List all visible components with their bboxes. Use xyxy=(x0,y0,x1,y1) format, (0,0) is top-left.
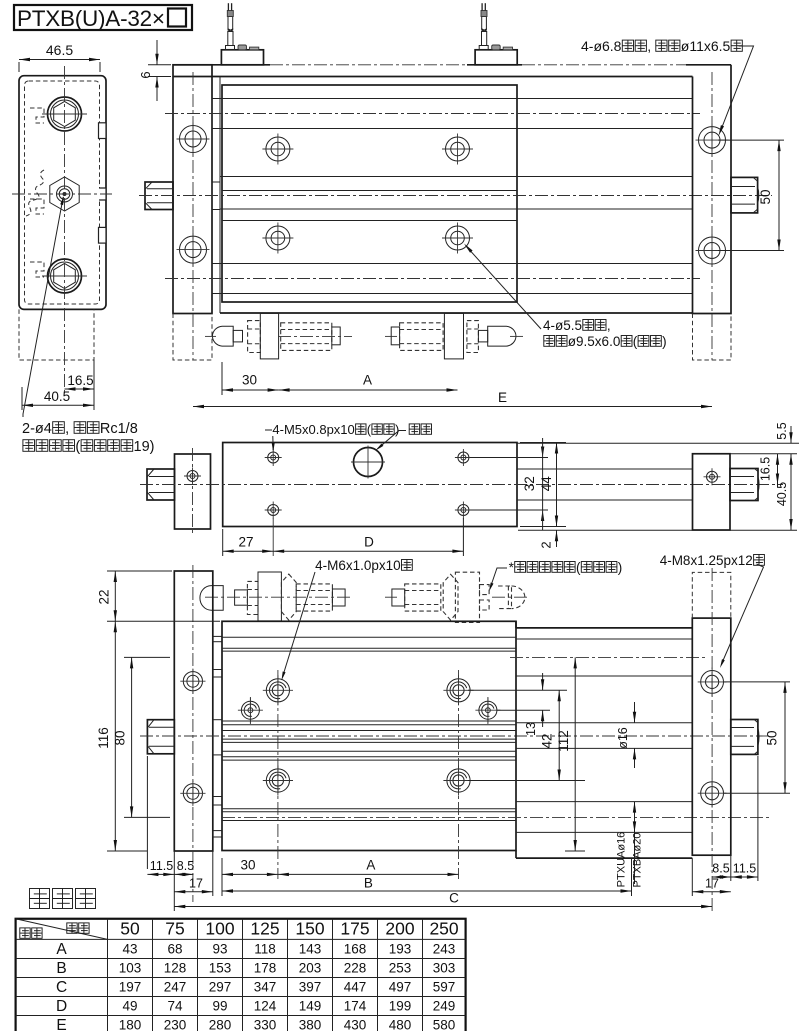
svg-text:280: 280 xyxy=(209,1018,232,1031)
svg-text:200: 200 xyxy=(385,919,414,939)
svg-text:303: 303 xyxy=(433,961,456,976)
svg-text:30: 30 xyxy=(240,858,255,873)
svg-text:74: 74 xyxy=(167,999,183,1014)
svg-text:50: 50 xyxy=(120,919,140,939)
svg-text:174: 174 xyxy=(344,999,367,1014)
svg-text:4-M6x1.0px10: 4-M6x1.0px10 xyxy=(315,558,401,573)
svg-text:124: 124 xyxy=(254,999,277,1014)
svg-text:228: 228 xyxy=(344,961,367,976)
svg-text:PTXUAø16: PTXUAø16 xyxy=(616,832,628,888)
svg-text:,: , xyxy=(65,421,69,437)
svg-text:116: 116 xyxy=(96,727,111,749)
svg-text:16.5: 16.5 xyxy=(759,457,773,481)
svg-text:125: 125 xyxy=(250,919,279,939)
svg-text:C: C xyxy=(449,891,459,906)
svg-text:5.5: 5.5 xyxy=(775,422,789,439)
svg-text:,: , xyxy=(647,38,651,54)
svg-text:16.5: 16.5 xyxy=(67,373,93,388)
svg-text:203: 203 xyxy=(299,961,322,976)
svg-text:430: 430 xyxy=(344,1018,367,1031)
svg-text:B: B xyxy=(56,960,66,977)
svg-text:D: D xyxy=(364,535,374,550)
svg-text:297: 297 xyxy=(209,980,232,995)
svg-text:40.5: 40.5 xyxy=(775,482,789,506)
svg-text:17: 17 xyxy=(189,877,203,891)
svg-text:4-ø6.8: 4-ø6.8 xyxy=(581,38,622,54)
svg-text:178: 178 xyxy=(254,961,277,976)
svg-text:480: 480 xyxy=(389,1018,412,1031)
svg-text:447: 447 xyxy=(344,980,367,995)
svg-text:4-ø5.5: 4-ø5.5 xyxy=(543,318,582,333)
svg-text:153: 153 xyxy=(209,961,232,976)
svg-text:112: 112 xyxy=(556,730,571,752)
svg-text:197: 197 xyxy=(119,980,142,995)
svg-text:): ) xyxy=(618,560,623,575)
svg-text:330: 330 xyxy=(254,1018,277,1031)
svg-text:50: 50 xyxy=(758,189,773,204)
svg-text:75: 75 xyxy=(165,919,184,939)
svg-text:27: 27 xyxy=(238,535,253,550)
svg-text:253: 253 xyxy=(389,961,412,976)
svg-text:4-M5x0.8px10: 4-M5x0.8px10 xyxy=(272,422,354,437)
svg-text:(: ( xyxy=(75,439,80,455)
svg-text:380: 380 xyxy=(299,1018,322,1031)
svg-text:11.5: 11.5 xyxy=(150,859,173,873)
svg-text:247: 247 xyxy=(164,980,187,995)
svg-text:175: 175 xyxy=(340,919,369,939)
svg-text:32: 32 xyxy=(522,476,537,491)
svg-text:149: 149 xyxy=(299,999,322,1014)
svg-text:597: 597 xyxy=(433,980,456,995)
svg-text:ø9.5x6.0: ø9.5x6.0 xyxy=(568,334,621,349)
svg-text:230: 230 xyxy=(164,1018,187,1031)
svg-text:100: 100 xyxy=(205,919,234,939)
svg-text:8.5: 8.5 xyxy=(177,859,194,873)
svg-text:243: 243 xyxy=(433,942,456,957)
svg-text:40.5: 40.5 xyxy=(44,389,70,404)
svg-text:168: 168 xyxy=(344,942,367,957)
svg-text:D: D xyxy=(56,998,67,1015)
svg-text:(: ( xyxy=(576,560,581,575)
svg-text:Rc1/8: Rc1/8 xyxy=(100,421,138,437)
svg-text:103: 103 xyxy=(119,961,142,976)
svg-text:249: 249 xyxy=(433,999,456,1014)
svg-text:B: B xyxy=(364,876,373,891)
svg-text:193: 193 xyxy=(389,942,412,957)
svg-text:118: 118 xyxy=(254,942,276,957)
svg-text:A: A xyxy=(56,941,67,958)
svg-text:(: ( xyxy=(633,334,638,349)
svg-text:ø16: ø16 xyxy=(616,727,630,749)
svg-text:49: 49 xyxy=(122,999,137,1014)
svg-text:128: 128 xyxy=(164,961,187,976)
svg-text:68: 68 xyxy=(167,942,182,957)
svg-text:,: , xyxy=(607,318,611,333)
svg-text:E: E xyxy=(498,390,507,405)
svg-text:*: * xyxy=(509,560,515,575)
svg-text:A: A xyxy=(366,858,375,873)
svg-text:347: 347 xyxy=(254,980,277,995)
svg-text:44: 44 xyxy=(539,476,554,492)
svg-text:4-M8x1.25px12: 4-M8x1.25px12 xyxy=(660,553,753,568)
svg-text:C: C xyxy=(56,979,67,996)
svg-text:A: A xyxy=(363,373,372,388)
svg-text:99: 99 xyxy=(212,999,227,1014)
svg-text:): ) xyxy=(395,422,399,437)
svg-text:143: 143 xyxy=(299,942,322,957)
svg-text:8.5: 8.5 xyxy=(712,862,729,876)
svg-text:6: 6 xyxy=(138,71,153,78)
svg-text:PTXB(U)A-32×: PTXB(U)A-32× xyxy=(17,6,165,31)
svg-text:80: 80 xyxy=(113,730,128,745)
svg-text:42: 42 xyxy=(540,733,555,748)
svg-text:ø11x6.5: ø11x6.5 xyxy=(681,38,731,54)
svg-text:(: ( xyxy=(367,422,372,437)
svg-text:580: 580 xyxy=(433,1018,456,1031)
svg-text:2-ø4: 2-ø4 xyxy=(22,421,52,437)
svg-text:PTXBAø20: PTXBAø20 xyxy=(632,832,644,887)
svg-text:93: 93 xyxy=(212,942,227,957)
svg-text:150: 150 xyxy=(295,919,324,939)
svg-text:30: 30 xyxy=(242,373,257,388)
svg-text:250: 250 xyxy=(429,919,458,939)
svg-text:397: 397 xyxy=(299,980,322,995)
svg-text:19): 19) xyxy=(134,439,155,455)
svg-text:17: 17 xyxy=(705,877,719,891)
svg-text:22: 22 xyxy=(97,589,112,604)
svg-text:50: 50 xyxy=(765,730,780,745)
svg-text:199: 199 xyxy=(389,999,412,1014)
svg-text:E: E xyxy=(56,1017,66,1031)
svg-text:43: 43 xyxy=(122,942,137,957)
svg-text:13: 13 xyxy=(524,722,538,736)
svg-text:11.5: 11.5 xyxy=(733,862,756,876)
svg-text:497: 497 xyxy=(389,980,412,995)
svg-text:46.5: 46.5 xyxy=(46,42,73,58)
svg-text:180: 180 xyxy=(119,1018,142,1031)
svg-text:2: 2 xyxy=(539,541,554,548)
svg-text:): ) xyxy=(662,334,667,349)
